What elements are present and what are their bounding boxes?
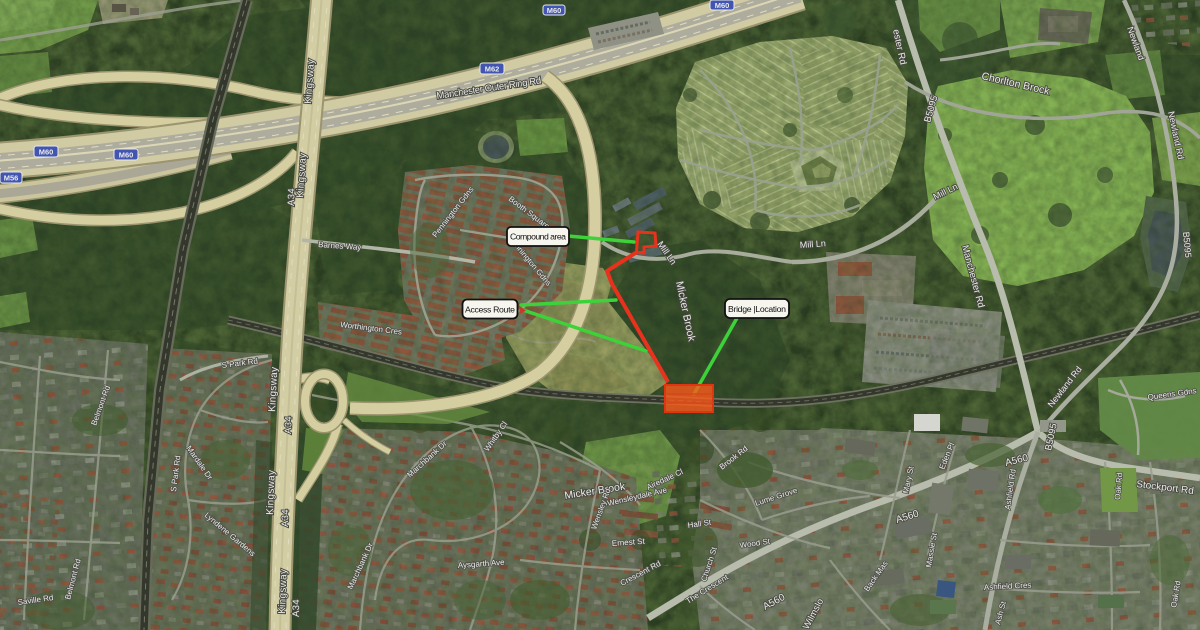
svg-text:Bridge |Location: Bridge |Location xyxy=(728,304,786,314)
svg-text:Access Route: Access Route xyxy=(465,305,515,315)
svg-text:Compound area: Compound area xyxy=(510,232,566,242)
